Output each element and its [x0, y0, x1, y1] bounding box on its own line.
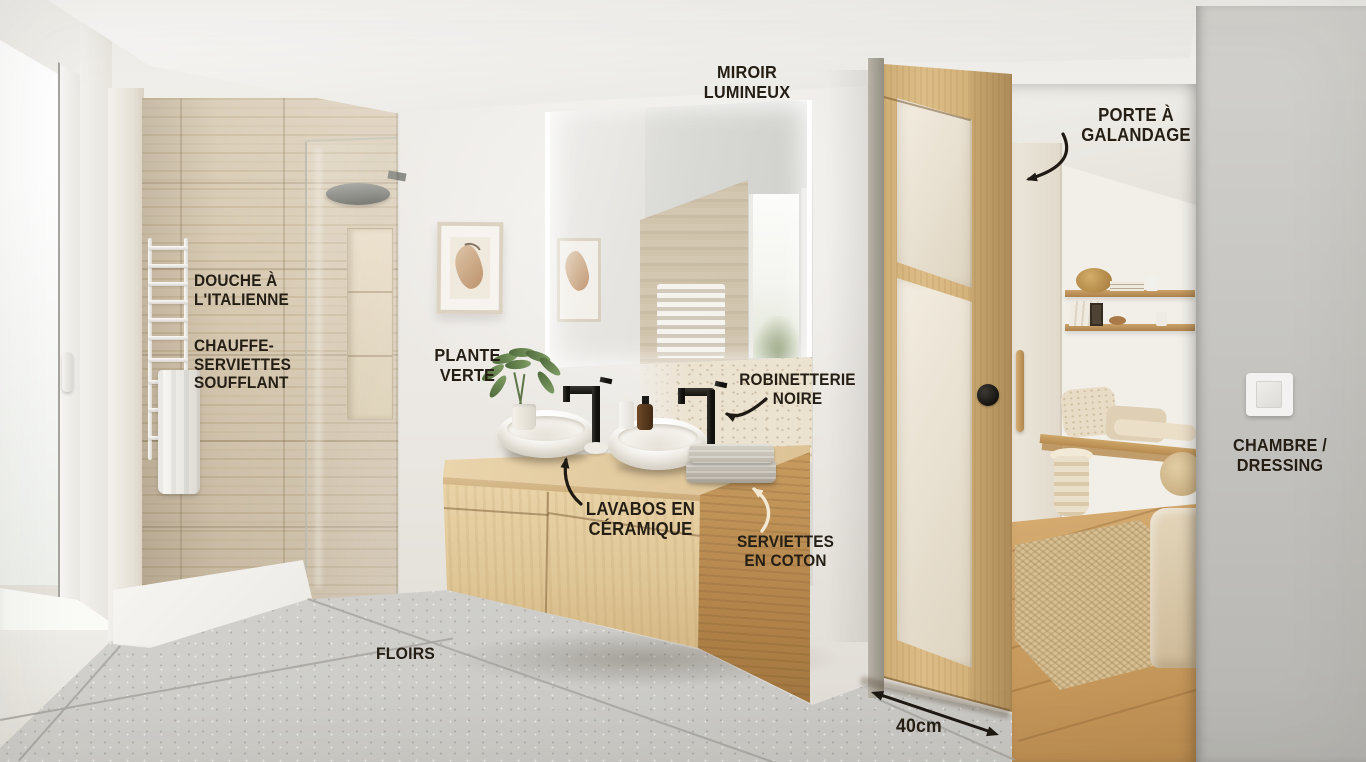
wall-shelf-upper — [1065, 290, 1195, 297]
cotton-towel-top — [689, 444, 774, 463]
soap-dispenser-white — [619, 401, 634, 429]
seat-cushion — [1113, 418, 1196, 441]
label-porte-a-galandage: PORTE À GALANDAGE — [1043, 105, 1229, 146]
label-serviettes-coton: SERVIETTES EN COTON — [727, 533, 843, 570]
pocket-sliding-door — [884, 58, 1012, 714]
label-chauffe-serviettes: CHAUFFE-SERVIETTES SOUFFLANT — [194, 337, 371, 393]
label-miroir-lumineux: MIROIR LUMINEUX — [682, 63, 812, 103]
label-lavabos-ceramique: LAVABOS EN CÉRAMIQUE — [559, 499, 722, 540]
art-mat — [450, 237, 491, 299]
radiator-bar — [148, 300, 188, 304]
drawer-gap — [545, 492, 549, 614]
door-edge-pull-handle — [1016, 350, 1024, 432]
wall-shelf-lower — [1065, 324, 1195, 331]
black-faucet-left — [592, 386, 600, 444]
small-jar — [1156, 312, 1167, 326]
faucet-right-tip — [678, 388, 685, 404]
label-floirs: FLOIRS — [371, 644, 441, 663]
window-handle — [62, 352, 73, 392]
shower-side-return-wall — [108, 88, 144, 640]
radiator-bar — [148, 264, 188, 268]
light-switch-rocker — [1256, 381, 1282, 408]
bedroom-dressing-view — [1012, 84, 1196, 762]
black-faucet-right — [707, 390, 715, 448]
cushion-plain — [1105, 405, 1167, 443]
wall-corner — [396, 108, 400, 600]
label-dimension-40cm: 40cm — [896, 716, 961, 737]
radiator-bar — [148, 336, 188, 340]
window-frame — [58, 62, 80, 600]
drawer-gap — [443, 507, 549, 516]
door-flush-handle — [977, 384, 999, 406]
floor-plank-joint — [1012, 631, 1196, 698]
floor-plank-joint — [1012, 537, 1196, 604]
woven-basket-tall — [1054, 456, 1089, 516]
illuminated-mirror — [545, 96, 812, 372]
floor-plank-joint — [1012, 583, 1196, 650]
mirror-led-edge — [545, 96, 812, 372]
annotated-bathroom-photo: MIROIR LUMINEUX PORTE À GALANDAGE DOUCHE… — [0, 0, 1366, 762]
radiator-rail — [148, 238, 152, 460]
label-chambre-dressing: CHAMBRE / DRESSING — [1206, 436, 1355, 476]
plant-pot — [512, 404, 536, 430]
radiator-bar — [148, 358, 188, 362]
wooden-bowl — [1109, 316, 1126, 325]
floor-plank-joint — [1018, 675, 1196, 742]
light-switch — [1246, 373, 1293, 416]
door-casing — [868, 58, 884, 698]
bench-leg — [1056, 450, 1061, 508]
woven-decor-ball — [1076, 268, 1112, 293]
bed-corner — [1150, 508, 1196, 668]
bench-seat — [1040, 434, 1196, 458]
photo-frame — [1090, 303, 1103, 326]
stacked-books — [1110, 281, 1144, 291]
soap-dispenser-amber — [637, 404, 653, 430]
label-plante-verte: PLANTE VERTE — [423, 346, 511, 386]
bench-apron — [1042, 443, 1196, 465]
window-glass — [0, 40, 58, 585]
frosted-glass-panel-upper — [897, 98, 972, 288]
label-douche-italienne: DOUCHE À L'ITALIENNE — [194, 272, 371, 309]
upright-books — [1069, 301, 1101, 326]
bedroom-wood-floor — [1012, 496, 1196, 762]
jute-rug — [1012, 514, 1196, 700]
label-robinetterie-noire: ROBINETTERIE NOIRE — [735, 371, 861, 408]
frosted-glass-panel-lower — [897, 278, 972, 668]
basket-fringe — [1050, 448, 1093, 462]
radiator-bar — [148, 318, 188, 322]
woven-basket-round — [1160, 452, 1196, 496]
cushion-patterned — [1060, 386, 1118, 439]
radiator-bar — [148, 282, 188, 286]
wall-art-frame — [437, 222, 504, 315]
candle — [1146, 275, 1158, 291]
radiator-bar — [148, 246, 188, 250]
floor-plank-joint — [1012, 493, 1196, 560]
soap-stone — [584, 442, 608, 454]
bedroom-ceiling — [1012, 84, 1196, 209]
